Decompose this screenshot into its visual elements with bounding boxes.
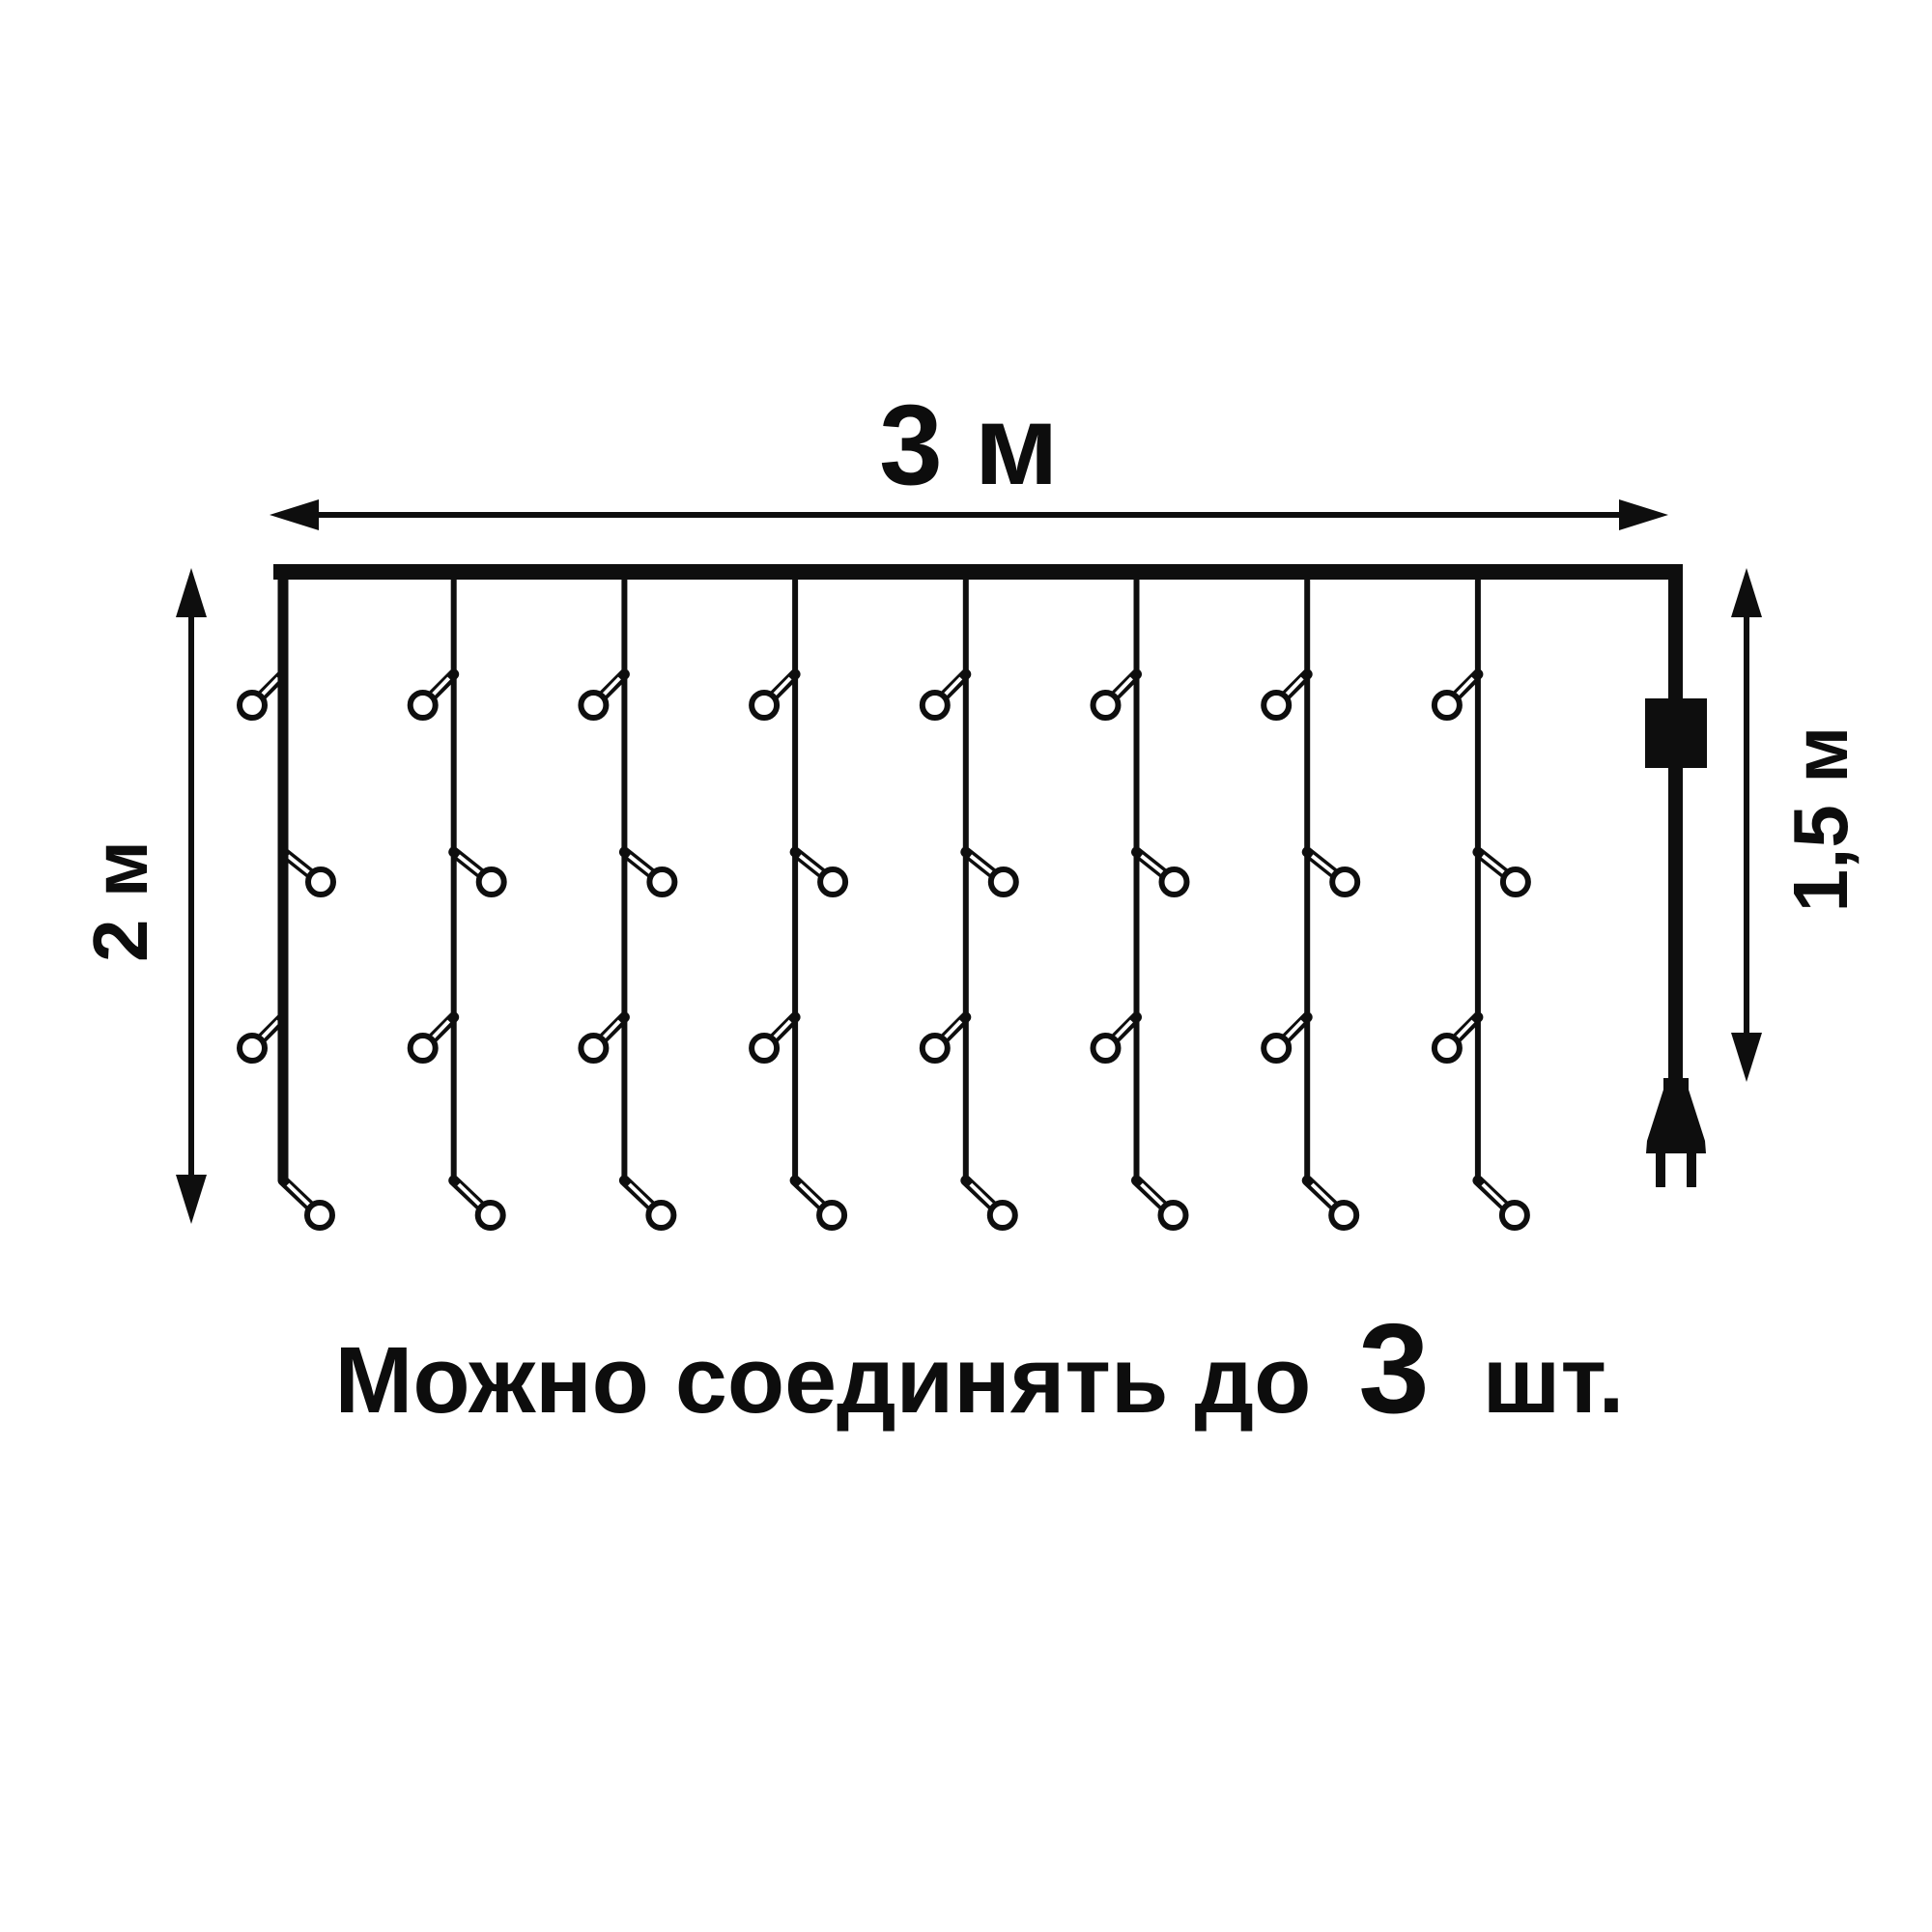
plug-prong-right — [1687, 1153, 1696, 1187]
light-bulb — [1435, 1036, 1460, 1061]
light-bulb — [1264, 1036, 1289, 1061]
light-bulb — [1503, 869, 1528, 895]
drop-dimension-label: 1,5 м — [1777, 726, 1863, 913]
light-bulb — [240, 693, 265, 718]
bulb-stem-cores — [252, 678, 1516, 1215]
width-dimension-label: 3 м — [879, 382, 1059, 509]
arrowhead-down-icon — [1731, 1033, 1762, 1082]
light-bulb — [478, 1203, 503, 1228]
connect-note-suffix: шт. — [1483, 1327, 1625, 1433]
light-bulb — [308, 869, 333, 895]
light-bulb — [752, 1036, 777, 1061]
light-bulb — [819, 1203, 844, 1228]
light-bulb — [923, 693, 948, 718]
light-bulb — [1331, 1203, 1356, 1228]
plug-icon — [1646, 1078, 1706, 1153]
light-bulb — [411, 1036, 436, 1061]
height-dimension-label: 2 м — [77, 840, 163, 962]
arrowhead-left-icon — [270, 499, 319, 530]
light-bulb — [752, 693, 777, 718]
right-dimension: 1,5 м — [1731, 568, 1863, 1082]
light-bulb — [649, 869, 674, 895]
top-dimension: 3 м — [270, 382, 1668, 530]
light-bulb — [581, 693, 606, 718]
bulb-stems — [252, 674, 1516, 1215]
light-bulb — [1435, 693, 1460, 718]
arrowhead-up-icon — [176, 568, 207, 617]
cord-wire — [1668, 568, 1683, 1084]
light-bulb — [990, 1203, 1015, 1228]
arrowhead-up-icon — [1731, 568, 1762, 617]
light-bulb — [1094, 1036, 1119, 1061]
light-bulb — [240, 1036, 265, 1061]
garland-curtain — [240, 564, 1683, 1228]
light-bulb — [1162, 869, 1187, 895]
light-bulb — [1332, 869, 1357, 895]
plug-prong-left — [1656, 1153, 1665, 1187]
light-bulb — [1264, 693, 1289, 718]
connect-note-prefix: Можно соединять до — [335, 1327, 1312, 1433]
light-bulb — [581, 1036, 606, 1061]
arrowhead-down-icon — [176, 1175, 207, 1224]
light-bulb — [307, 1203, 332, 1228]
connect-note-count: 3 — [1358, 1297, 1429, 1439]
connector-box — [1645, 698, 1707, 768]
light-bulb — [411, 693, 436, 718]
main-wire-bar — [273, 564, 1683, 580]
left-dimension: 2 м — [77, 568, 207, 1224]
power-cord — [1645, 568, 1707, 1187]
connect-note: Можно соединять до 3 шт. — [335, 1297, 1625, 1439]
light-bulb — [479, 869, 504, 895]
light-bulb — [820, 869, 845, 895]
arrowhead-right-icon — [1619, 499, 1668, 530]
light-bulb — [991, 869, 1016, 895]
light-bulbs — [240, 693, 1528, 1228]
light-bulb — [648, 1203, 673, 1228]
strand-wires — [283, 576, 1478, 1180]
diagram-canvas: 3 м 2 м 1,5 м Можно соединять до 3 шт. — [0, 0, 1932, 1932]
light-bulb — [1161, 1203, 1186, 1228]
light-bulb — [1094, 693, 1119, 718]
light-bulb — [1502, 1203, 1527, 1228]
light-bulb — [923, 1036, 948, 1061]
